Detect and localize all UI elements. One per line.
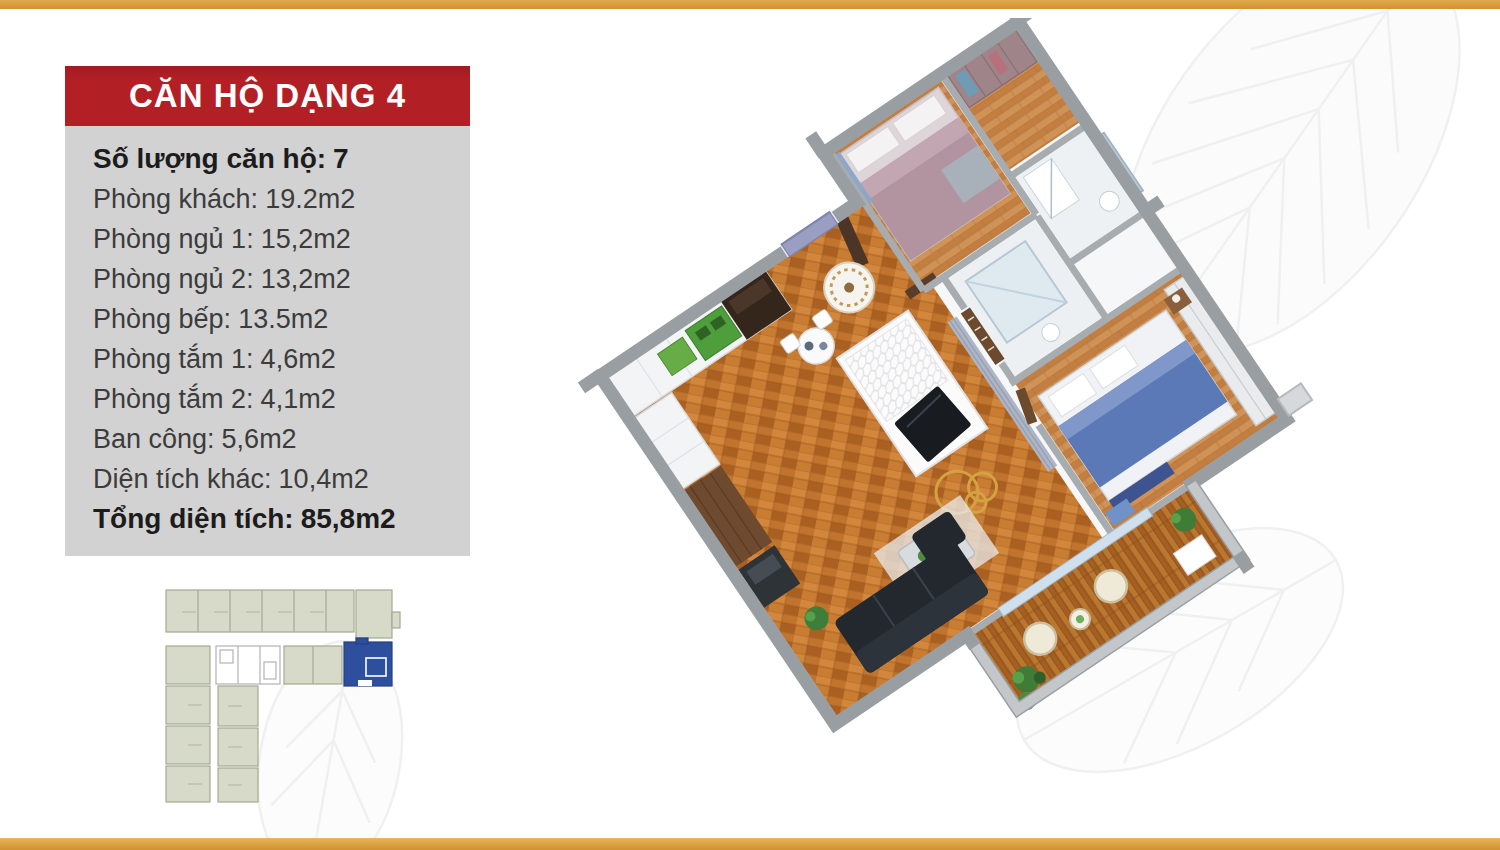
spec-row-unit-count: Số lượng căn hộ:7 bbox=[93, 139, 460, 179]
apartment-spec-panel: CĂN HỘ DẠNG 4 Số lượng căn hộ:7 Phòng kh… bbox=[65, 66, 470, 556]
spec-row-balcony: Ban công:5,6m2 bbox=[93, 419, 460, 459]
unit-block bbox=[166, 646, 210, 684]
spec-row-living-room: Phòng khách:19.2m2 bbox=[93, 179, 460, 219]
unit-block bbox=[356, 590, 392, 638]
spec-row-bathroom-2: Phòng tắm 2:4,1m2 bbox=[93, 379, 460, 419]
spec-row-bathroom-1: Phòng tắm 1:4,6m2 bbox=[93, 339, 460, 379]
spec-row-other-area: Diện tích khác:10,4m2 bbox=[93, 459, 460, 499]
spec-list: Số lượng căn hộ:7 Phòng khách:19.2m2 Phò… bbox=[65, 126, 470, 556]
spec-row-bedroom-2: Phòng ngủ 2:13,2m2 bbox=[93, 259, 460, 299]
unit-block bbox=[392, 612, 400, 628]
floor-plate-locator-map bbox=[158, 586, 458, 831]
panel-title: CĂN HỘ DẠNG 4 bbox=[65, 66, 470, 126]
top-accent-bar bbox=[0, 0, 1500, 9]
brochure-page: CĂN HỘ DẠNG 4 Số lượng căn hộ:7 Phòng kh… bbox=[0, 0, 1500, 850]
spec-row-kitchen: Phòng bếp:13.5m2 bbox=[93, 299, 460, 339]
spec-row-bedroom-1: Phòng ngủ 1:15,2m2 bbox=[93, 219, 460, 259]
spec-row-total-area: Tổng diện tích:85,8m2 bbox=[93, 499, 460, 539]
apartment-3d-render bbox=[565, 18, 1455, 833]
core-block bbox=[216, 646, 280, 684]
highlighted-unit bbox=[344, 638, 392, 686]
bottom-accent-bar bbox=[0, 838, 1500, 850]
